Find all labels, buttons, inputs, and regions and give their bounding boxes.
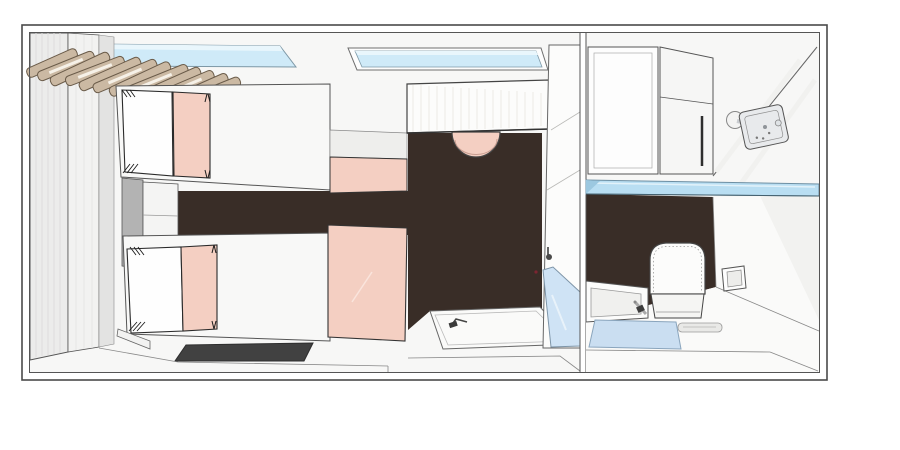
desk bbox=[407, 80, 549, 133]
bed2-pink-runner bbox=[181, 245, 217, 331]
dark-rug bbox=[175, 343, 313, 361]
pink-foot-panel bbox=[328, 225, 407, 341]
twin-bed-2 bbox=[117, 233, 330, 349]
bed1-pillow bbox=[122, 90, 173, 176]
wall-dot bbox=[534, 270, 537, 273]
faucet-base bbox=[634, 301, 637, 304]
toilet bbox=[650, 243, 705, 318]
toilet-base bbox=[651, 294, 704, 318]
bath-mat bbox=[589, 320, 681, 349]
bed2-pillow bbox=[127, 247, 183, 333]
foot-bench bbox=[330, 130, 407, 159]
floorplan-canvas bbox=[0, 0, 900, 450]
twin-bed-1 bbox=[116, 84, 330, 190]
robe-hook bbox=[546, 254, 552, 260]
desk-top bbox=[407, 80, 549, 133]
washbasin bbox=[586, 281, 648, 322]
tp-holder-inset bbox=[727, 270, 742, 287]
floorplan-svg bbox=[0, 0, 900, 450]
mixer-lever-tip bbox=[763, 125, 767, 129]
pink-foot-strip bbox=[330, 157, 407, 193]
bed1-pink-runner bbox=[173, 92, 210, 178]
skylight-2-highlight bbox=[355, 51, 538, 55]
dividing-wall-fill bbox=[580, 33, 586, 372]
toilet-paper-holder bbox=[722, 266, 746, 291]
overhead-cabinet-side bbox=[660, 47, 713, 174]
overhead-cabinet-front bbox=[588, 47, 658, 174]
dividing-wall bbox=[580, 33, 586, 372]
toilet-lid bbox=[650, 243, 705, 294]
